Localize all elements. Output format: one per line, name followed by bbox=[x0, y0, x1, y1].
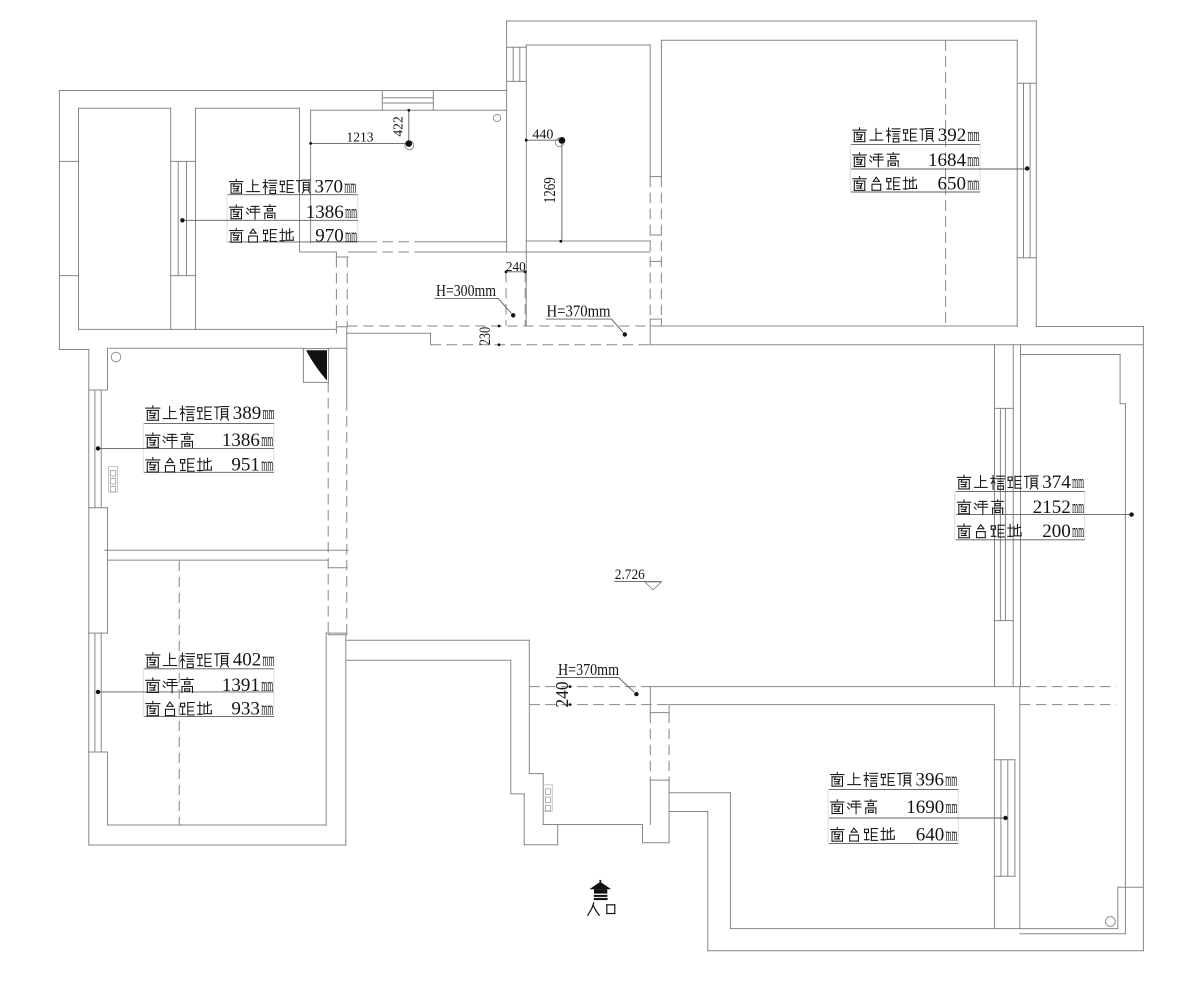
svg-text:1213: 1213 bbox=[346, 129, 373, 144]
svg-text:2152: 2152 bbox=[1033, 497, 1071, 518]
svg-text:mm: mm bbox=[345, 225, 357, 246]
svg-text:396: 396 bbox=[916, 769, 945, 790]
svg-text:1386: 1386 bbox=[306, 202, 344, 223]
svg-text:240: 240 bbox=[552, 681, 572, 707]
svg-text:mm: mm bbox=[263, 650, 275, 671]
svg-text:1690: 1690 bbox=[906, 797, 944, 818]
svg-text:374: 374 bbox=[1042, 472, 1071, 493]
svg-text:mm: mm bbox=[263, 403, 275, 424]
svg-text:389: 389 bbox=[233, 403, 262, 424]
svg-text:mm: mm bbox=[1072, 497, 1084, 518]
svg-text:230: 230 bbox=[477, 327, 494, 346]
svg-text:240: 240 bbox=[506, 259, 526, 274]
svg-text:1684: 1684 bbox=[928, 150, 967, 171]
svg-text:2.726: 2.726 bbox=[615, 567, 645, 583]
svg-text:mm: mm bbox=[261, 430, 273, 451]
svg-text:1386: 1386 bbox=[222, 430, 260, 451]
svg-text:mm: mm bbox=[1072, 521, 1084, 542]
svg-text:640: 640 bbox=[916, 824, 945, 845]
svg-text:1391: 1391 bbox=[222, 675, 260, 696]
svg-text:951: 951 bbox=[231, 455, 260, 476]
svg-text:mm: mm bbox=[261, 455, 273, 476]
svg-text:933: 933 bbox=[231, 698, 260, 719]
svg-text:422: 422 bbox=[391, 116, 406, 137]
svg-text:H=370mm: H=370mm bbox=[558, 660, 619, 679]
svg-text:mm: mm bbox=[261, 698, 273, 719]
svg-text:mm: mm bbox=[344, 176, 356, 197]
svg-text:H=370mm: H=370mm bbox=[547, 301, 611, 320]
svg-text:370: 370 bbox=[315, 176, 344, 197]
svg-text:H=300mm: H=300mm bbox=[436, 281, 496, 300]
svg-text:650: 650 bbox=[938, 174, 967, 195]
svg-text:mm: mm bbox=[1072, 472, 1084, 493]
svg-text:440: 440 bbox=[532, 128, 553, 143]
svg-text:970: 970 bbox=[315, 225, 344, 246]
svg-text:mm: mm bbox=[967, 150, 979, 171]
svg-text:mm: mm bbox=[261, 675, 273, 696]
svg-text:392: 392 bbox=[938, 125, 967, 146]
svg-text:1269: 1269 bbox=[540, 177, 559, 203]
svg-text:402: 402 bbox=[233, 650, 262, 671]
svg-text:mm: mm bbox=[945, 769, 957, 790]
svg-text:mm: mm bbox=[946, 797, 958, 818]
svg-text:200: 200 bbox=[1042, 521, 1071, 542]
svg-text:mm: mm bbox=[946, 824, 958, 845]
svg-text:mm: mm bbox=[967, 174, 979, 195]
svg-text:mm: mm bbox=[968, 125, 980, 146]
svg-text:mm: mm bbox=[345, 202, 357, 223]
